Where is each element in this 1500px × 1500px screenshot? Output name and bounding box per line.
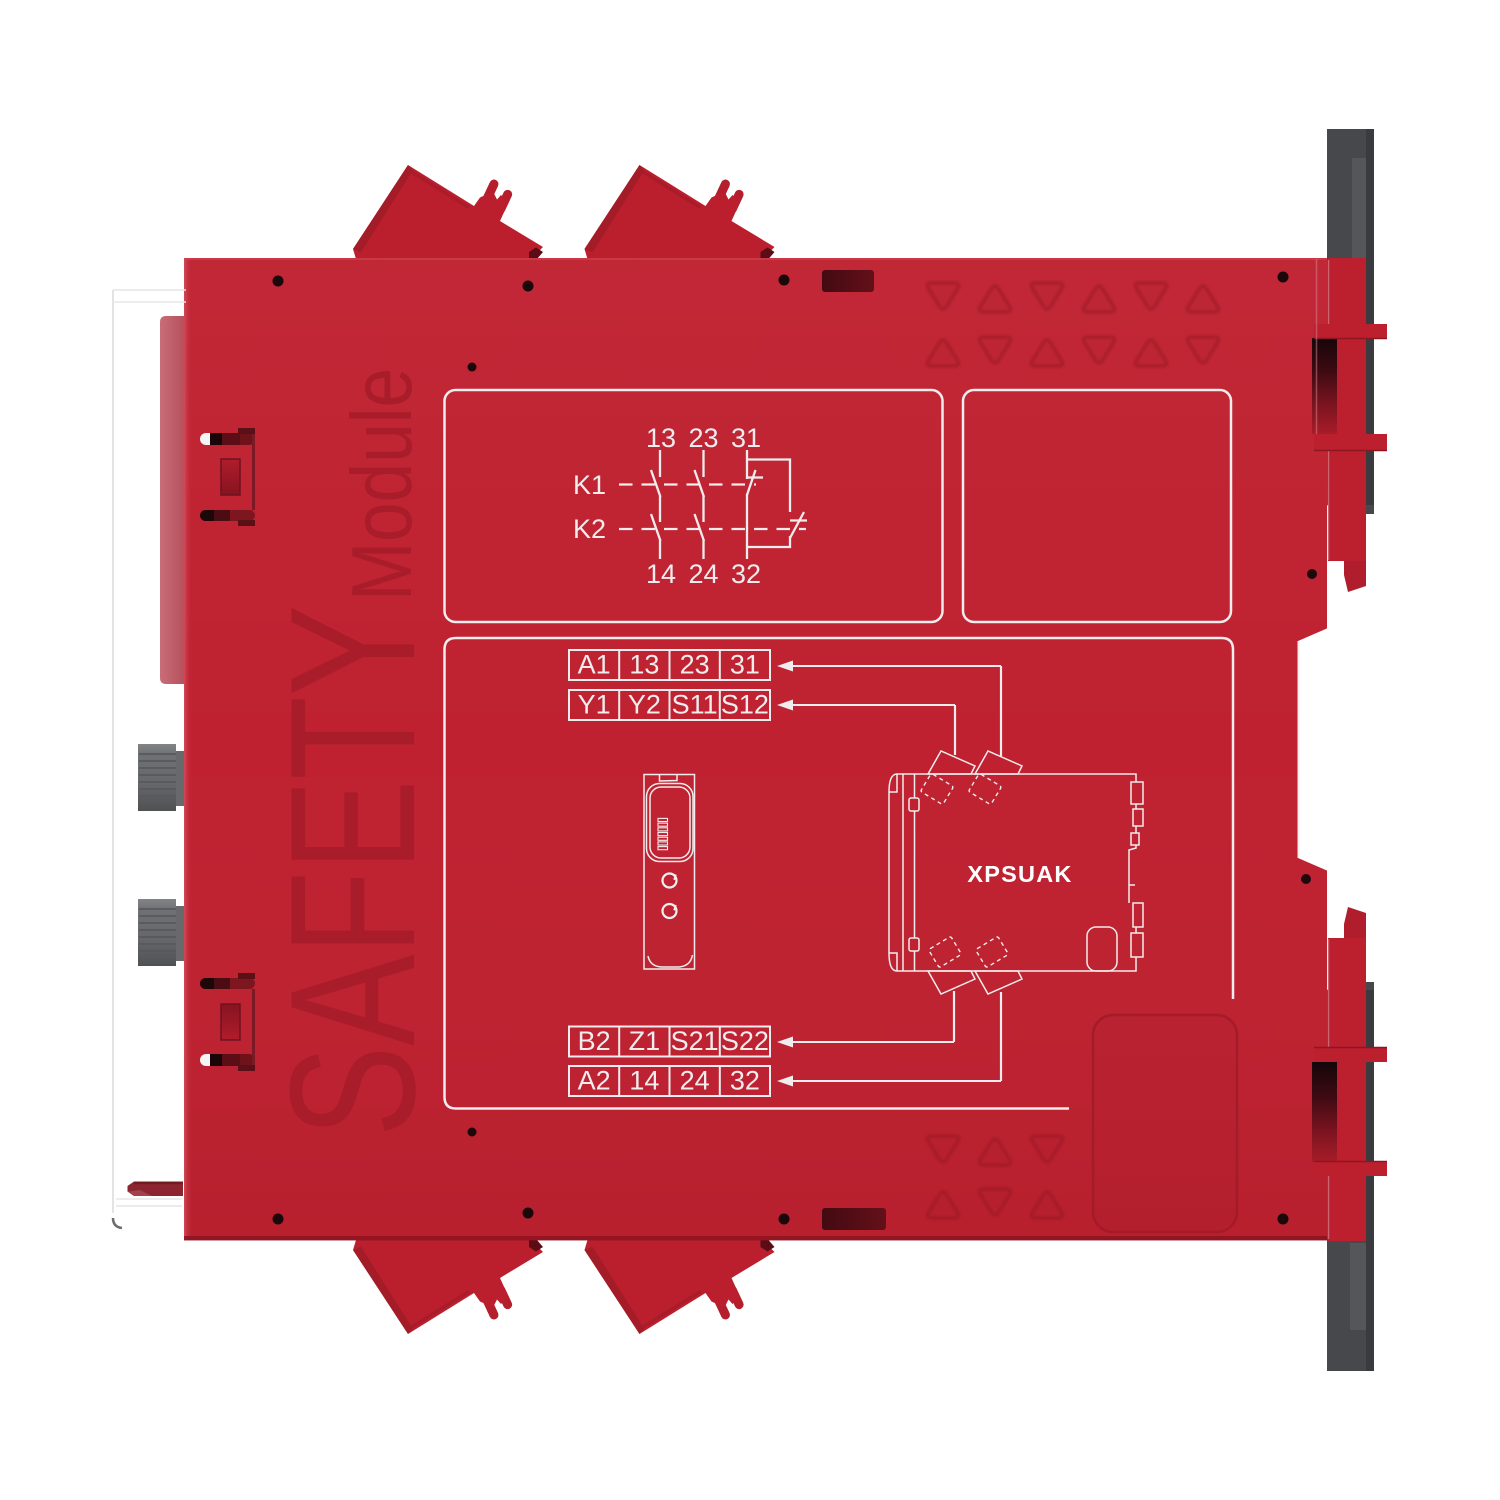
- svg-text:23: 23: [680, 650, 710, 680]
- svg-text:S12: S12: [721, 690, 769, 720]
- svg-text:24: 24: [688, 559, 718, 589]
- svg-text:32: 32: [730, 1066, 760, 1096]
- svg-text:B2: B2: [578, 1026, 611, 1056]
- svg-text:Module: Module: [335, 368, 430, 601]
- svg-text:23: 23: [688, 423, 718, 453]
- svg-text:13: 13: [629, 650, 659, 680]
- svg-text:S22: S22: [721, 1026, 769, 1056]
- svg-text:24: 24: [680, 1066, 710, 1096]
- svg-text:SAFETY: SAFETY: [253, 605, 452, 1137]
- svg-text:A1: A1: [578, 650, 611, 680]
- svg-text:Y1: Y1: [578, 690, 611, 720]
- svg-text:Z1: Z1: [629, 1026, 661, 1056]
- svg-text:31: 31: [730, 650, 760, 680]
- svg-text:32: 32: [731, 559, 761, 589]
- svg-text:K1: K1: [573, 470, 606, 500]
- svg-text:Y2: Y2: [628, 690, 661, 720]
- svg-text:13: 13: [646, 423, 676, 453]
- svg-text:S21: S21: [671, 1026, 719, 1056]
- svg-text:14: 14: [646, 559, 676, 589]
- svg-text:31: 31: [731, 423, 761, 453]
- svg-text:K2: K2: [573, 514, 606, 544]
- svg-text:XPSUAK: XPSUAK: [967, 861, 1072, 887]
- svg-text:S11: S11: [672, 690, 718, 720]
- svg-text:A2: A2: [578, 1066, 611, 1096]
- svg-text:14: 14: [629, 1066, 659, 1096]
